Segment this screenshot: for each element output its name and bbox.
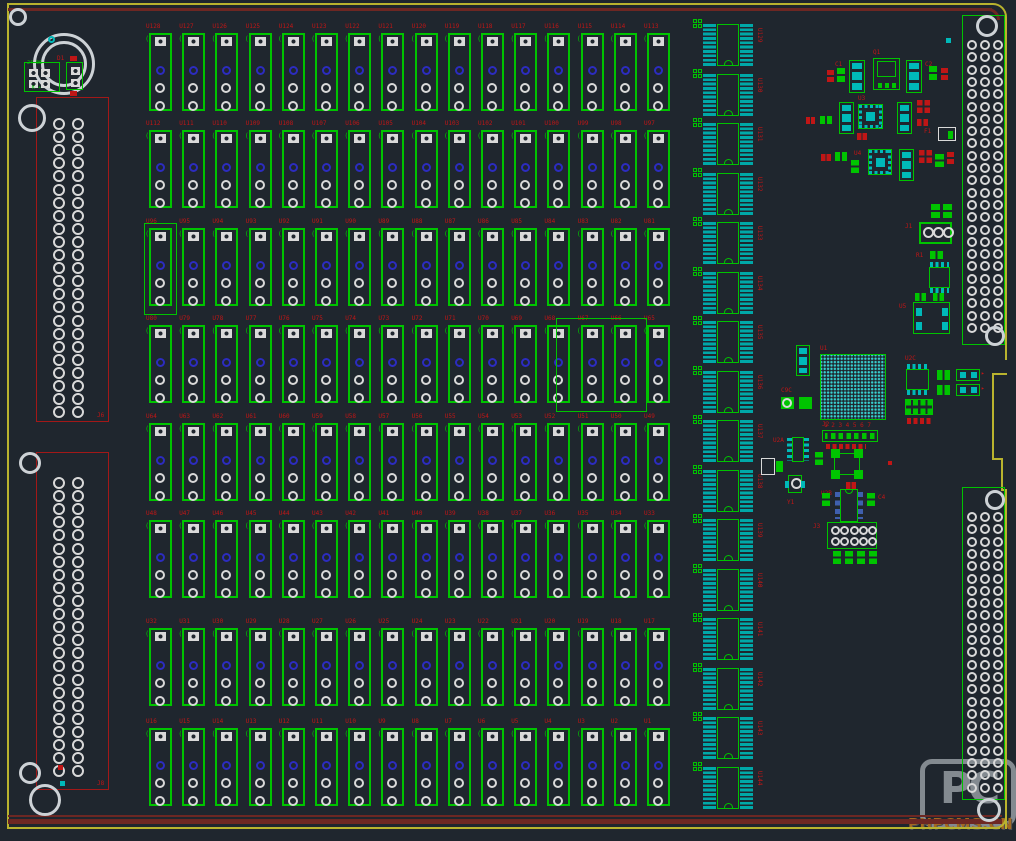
smd-r4row-footprint[interactable] xyxy=(907,418,931,424)
smd-g2h-footprint[interactable] xyxy=(915,293,926,301)
relay-footprint[interactable] xyxy=(647,520,670,598)
relay-footprint[interactable] xyxy=(249,130,272,208)
edge-connector-left-2[interactable] xyxy=(36,452,109,790)
cap-pad xyxy=(693,316,697,320)
relay-footprint[interactable] xyxy=(514,33,537,111)
relay-footprint[interactable] xyxy=(348,325,371,403)
dip-ic-footprint[interactable]: U134 xyxy=(700,272,756,314)
smd-wbox-footprint[interactable] xyxy=(938,127,956,141)
relay-footprint[interactable] xyxy=(282,520,305,598)
pad-round xyxy=(653,473,663,483)
smd-r2v-footprint[interactable] xyxy=(947,152,954,164)
relay-footprint[interactable] xyxy=(481,33,504,111)
mounting-hole[interactable] xyxy=(29,784,61,816)
relay-footprint[interactable] xyxy=(614,520,637,598)
relay-footprint[interactable] xyxy=(481,520,504,598)
relay-footprint[interactable] xyxy=(249,520,272,598)
relay-footprint[interactable] xyxy=(249,728,272,806)
relay-footprint[interactable] xyxy=(215,628,238,706)
dip-ic-footprint[interactable]: U142 xyxy=(700,668,756,710)
relay-footprint[interactable] xyxy=(249,325,272,403)
dip-label: U134 xyxy=(756,276,762,290)
smd-g2v-footprint[interactable] xyxy=(931,204,940,218)
bypass-cap-pads[interactable] xyxy=(693,415,702,425)
smd-cross4-footprint[interactable] xyxy=(831,449,863,479)
smd-dotr-footprint[interactable] xyxy=(888,461,892,465)
relay-footprint[interactable] xyxy=(215,130,238,208)
smd-icbig-footprint[interactable] xyxy=(913,302,950,334)
bypass-cap-pads[interactable] xyxy=(693,168,702,178)
smd-crystal-footprint[interactable] xyxy=(785,475,805,497)
through-hole-pad xyxy=(967,660,977,670)
ref-designator-label: U128 xyxy=(146,24,160,30)
relay-footprint[interactable] xyxy=(348,628,371,706)
through-hole-pad xyxy=(980,586,990,596)
pad-square xyxy=(487,232,498,241)
relay-footprint[interactable] xyxy=(614,423,637,501)
relay-footprint[interactable] xyxy=(514,228,537,306)
smd-dotc-footprint[interactable] xyxy=(60,781,65,786)
smd-g2h-footprint[interactable] xyxy=(937,370,950,380)
relay-footprint[interactable] xyxy=(514,628,537,706)
relay-footprint[interactable] xyxy=(415,325,438,403)
dip-ic-footprint[interactable]: U140 xyxy=(700,569,756,611)
relay-footprint[interactable] xyxy=(282,423,305,501)
smd-g2h-footprint[interactable] xyxy=(820,116,832,124)
relay-footprint[interactable] xyxy=(149,423,172,501)
pad-round xyxy=(653,393,663,403)
relay-footprint[interactable] xyxy=(315,33,338,111)
mounting-hole[interactable] xyxy=(985,326,1005,346)
smd-g2v-footprint[interactable] xyxy=(857,551,865,564)
smd-qfn-footprint[interactable] xyxy=(858,104,883,129)
pad-round xyxy=(155,375,165,385)
relay-footprint[interactable] xyxy=(381,325,404,403)
pad-square xyxy=(520,134,531,143)
smd-g2v-footprint[interactable] xyxy=(869,551,877,564)
through-hole-pad xyxy=(967,697,977,707)
relay-footprint[interactable] xyxy=(149,325,172,403)
pad-blue xyxy=(156,163,165,172)
pad-blue xyxy=(322,358,331,367)
bypass-cap-pads[interactable] xyxy=(693,762,702,772)
through-hole-pad xyxy=(72,647,84,659)
pad-square xyxy=(29,69,38,77)
bypass-cap-pads[interactable] xyxy=(693,366,702,376)
pad-square xyxy=(387,732,398,741)
pad-round xyxy=(553,491,563,501)
relay-footprint[interactable] xyxy=(415,33,438,111)
pad-round xyxy=(387,180,397,190)
relay-footprint[interactable] xyxy=(514,728,537,806)
dip-label: U136 xyxy=(756,375,762,389)
relay-footprint[interactable] xyxy=(182,628,205,706)
mounting-hole[interactable] xyxy=(19,452,41,474)
dip-ic-footprint[interactable]: U132 xyxy=(700,173,756,215)
dip-ic-footprint[interactable]: U141 xyxy=(700,618,756,660)
relay-footprint[interactable] xyxy=(348,728,371,806)
relay-footprint[interactable] xyxy=(647,33,670,111)
relay-footprint[interactable] xyxy=(547,520,570,598)
ref-designator-label: U74 xyxy=(345,316,356,322)
dip-label: U132 xyxy=(756,177,762,191)
cap-pad xyxy=(693,569,697,573)
cap-pad xyxy=(693,465,697,469)
relay-footprint[interactable] xyxy=(514,520,537,598)
relay-footprint[interactable] xyxy=(581,33,604,111)
relay-footprint[interactable] xyxy=(381,628,404,706)
pad-square xyxy=(587,134,598,143)
relay-footprint[interactable] xyxy=(215,728,238,806)
relay-footprint[interactable] xyxy=(547,228,570,306)
smd-wpad2-footprint[interactable] xyxy=(761,458,783,475)
smd-pad2big-footprint[interactable] xyxy=(781,396,812,411)
relay-footprint[interactable] xyxy=(249,33,272,111)
bypass-cap-pads[interactable] xyxy=(693,514,702,524)
smd-r4-footprint[interactable] xyxy=(917,100,930,113)
relay-footprint[interactable] xyxy=(547,628,570,706)
dip-ic-footprint[interactable]: U131 xyxy=(700,123,756,165)
relay-footprint[interactable] xyxy=(182,728,205,806)
relay-footprint[interactable] xyxy=(381,130,404,208)
through-hole-pad xyxy=(72,569,84,581)
dip-pad-strip-right xyxy=(740,668,753,710)
relay-footprint[interactable] xyxy=(282,325,305,403)
dip-pad-strip-left xyxy=(703,371,716,413)
pad-round xyxy=(155,101,165,111)
pad-round xyxy=(587,83,597,93)
pad-square xyxy=(155,732,166,741)
dip-ic-footprint[interactable]: U138 xyxy=(700,470,756,512)
pad-round xyxy=(587,588,597,598)
relay-footprint[interactable] xyxy=(315,130,338,208)
relay-footprint[interactable] xyxy=(581,423,604,501)
diode-footprint[interactable] xyxy=(66,62,83,90)
smd-r2v-footprint[interactable] xyxy=(941,68,948,80)
smd-r2v-footprint[interactable] xyxy=(827,70,834,82)
smd-g2h-footprint[interactable] xyxy=(930,251,943,259)
relay-footprint[interactable] xyxy=(614,33,637,111)
bypass-cap-pads[interactable] xyxy=(693,613,702,623)
smd-g2v-footprint[interactable] xyxy=(943,204,952,218)
relay-footprint[interactable] xyxy=(415,228,438,306)
through-hole-pad xyxy=(967,586,977,596)
smd-soic8v-footprint[interactable] xyxy=(787,436,809,463)
ref-designator-label: U36 xyxy=(544,511,555,517)
relay-footprint[interactable] xyxy=(415,520,438,598)
relay-footprint[interactable] xyxy=(514,130,537,208)
dip-ic-footprint[interactable]: U129 xyxy=(700,24,756,66)
relay-footprint[interactable] xyxy=(249,628,272,706)
relay-footprint[interactable] xyxy=(448,628,471,706)
smd-r2h-footprint[interactable] xyxy=(917,119,928,126)
smd-r2h-footprint[interactable] xyxy=(806,117,815,124)
pad-round xyxy=(354,570,364,580)
relay-footprint[interactable] xyxy=(581,628,604,706)
relay-footprint[interactable] xyxy=(182,33,205,111)
mounting-hole[interactable] xyxy=(976,15,998,37)
smd-r2h-footprint[interactable] xyxy=(821,154,831,161)
relay-footprint[interactable] xyxy=(282,728,305,806)
dip-pad-strip-right xyxy=(740,767,753,809)
relay-footprint[interactable] xyxy=(581,228,604,306)
relay-footprint[interactable] xyxy=(348,228,371,306)
smd-term3-footprint[interactable] xyxy=(919,222,952,244)
relay-footprint[interactable] xyxy=(315,628,338,706)
relay-footprint[interactable] xyxy=(149,728,172,806)
smd-v3-footprint[interactable] xyxy=(897,102,912,134)
pad-round xyxy=(288,570,298,580)
smd-arrow2-footprint[interactable] xyxy=(956,369,980,381)
bypass-cap-pads[interactable] xyxy=(693,118,702,128)
smd-v3-footprint[interactable] xyxy=(899,149,914,181)
bypass-cap-pads[interactable] xyxy=(693,69,702,79)
relay-footprint[interactable] xyxy=(348,423,371,501)
ref-designator-label: U39 xyxy=(445,511,456,517)
smd-g2v-footprint[interactable] xyxy=(851,160,859,173)
relay-footprint[interactable] xyxy=(614,628,637,706)
pad-round xyxy=(587,491,597,501)
ref-designator-label: J6 xyxy=(97,413,104,419)
smd-g2v-footprint[interactable] xyxy=(815,452,823,465)
relay-footprint[interactable] xyxy=(315,325,338,403)
ref-designator-label: U3 xyxy=(578,719,585,725)
relay-footprint[interactable] xyxy=(448,228,471,306)
through-hole-pad xyxy=(993,126,1003,136)
smd-dotc-footprint[interactable] xyxy=(946,38,951,43)
smd-r2h-footprint[interactable] xyxy=(846,482,856,489)
smd-hdr2x5-footprint[interactable] xyxy=(827,522,877,549)
dip-ic-footprint[interactable]: U143 xyxy=(700,717,756,759)
smd-v3-footprint[interactable] xyxy=(796,345,810,376)
relay-footprint[interactable] xyxy=(215,33,238,111)
smd-v3-footprint[interactable] xyxy=(839,102,854,134)
pad-round xyxy=(454,393,464,403)
bypass-cap-pads[interactable] xyxy=(693,217,702,227)
pad-round xyxy=(487,696,497,706)
dip-ic-footprint[interactable]: U139 xyxy=(700,519,756,561)
relay-footprint[interactable] xyxy=(182,520,205,598)
relay-footprint[interactable] xyxy=(448,520,471,598)
dip-ic-footprint[interactable]: U144 xyxy=(700,767,756,809)
smd-dotr-footprint[interactable] xyxy=(58,765,63,770)
relay-footprint[interactable] xyxy=(614,130,637,208)
pad-blue xyxy=(189,761,198,770)
smd-dip8-footprint[interactable] xyxy=(835,489,863,522)
pad-blue xyxy=(654,358,663,367)
smd-soic8h-footprint[interactable] xyxy=(928,262,951,293)
smd-g2v-footprint[interactable] xyxy=(935,154,944,167)
relay-footprint[interactable] xyxy=(481,130,504,208)
mounting-hole[interactable] xyxy=(18,104,46,132)
chip-pad xyxy=(960,387,966,393)
dip-ic-footprint[interactable]: U133 xyxy=(700,222,756,264)
relay-footprint[interactable] xyxy=(282,228,305,306)
relay-footprint[interactable] xyxy=(514,325,537,403)
relay-footprint[interactable] xyxy=(149,130,172,208)
pad-round xyxy=(520,570,530,580)
pad-blue xyxy=(355,358,364,367)
smd-soic8h-footprint[interactable] xyxy=(905,364,930,395)
pad-round xyxy=(553,678,563,688)
bypass-cap-pads[interactable] xyxy=(693,267,702,277)
bypass-cap-pads[interactable] xyxy=(693,465,702,475)
pad-round xyxy=(188,796,198,806)
smd-r2h-footprint[interactable] xyxy=(857,133,867,140)
relay-footprint[interactable] xyxy=(647,423,670,501)
smd-hdrrow-footprint[interactable] xyxy=(822,430,878,442)
dip-pin1-notch xyxy=(724,654,733,660)
ref-designator-label: U28 xyxy=(279,619,290,625)
relay-footprint[interactable] xyxy=(381,33,404,111)
relay-footprint[interactable] xyxy=(282,33,305,111)
relay-footprint[interactable] xyxy=(448,130,471,208)
relay-footprint[interactable] xyxy=(149,33,172,111)
edge-connector-right-1[interactable] xyxy=(962,15,1005,345)
dip8-pads-right xyxy=(858,492,863,519)
power-pads-block[interactable] xyxy=(24,62,60,92)
dip-ic-footprint[interactable]: U137 xyxy=(700,420,756,462)
relay-footprint[interactable] xyxy=(415,423,438,501)
mounting-hole[interactable] xyxy=(985,490,1005,510)
bypass-cap-pads[interactable] xyxy=(693,663,702,673)
relay-footprint[interactable] xyxy=(448,728,471,806)
smd-r4-footprint[interactable] xyxy=(919,150,932,163)
relay-footprint[interactable] xyxy=(481,423,504,501)
relay-footprint[interactable] xyxy=(149,520,172,598)
relay-footprint[interactable] xyxy=(581,520,604,598)
relay-footprint[interactable] xyxy=(215,423,238,501)
relay-footprint[interactable] xyxy=(315,520,338,598)
relay-footprint[interactable] xyxy=(448,423,471,501)
smd-v3-footprint[interactable] xyxy=(906,60,922,93)
through-hole-pad xyxy=(967,249,977,259)
relay-footprint[interactable] xyxy=(249,423,272,501)
smd-g2v-footprint[interactable] xyxy=(833,551,841,564)
mounting-hole[interactable] xyxy=(977,798,1001,822)
smd-g2h-footprint[interactable] xyxy=(937,385,950,395)
bypass-cap-pads[interactable] xyxy=(693,564,702,574)
relay-footprint[interactable] xyxy=(614,228,637,306)
relay-footprint[interactable] xyxy=(315,228,338,306)
mounting-hole[interactable] xyxy=(9,8,27,26)
ref-designator-label: U9 xyxy=(378,719,385,725)
relay-footprint[interactable] xyxy=(415,728,438,806)
relay-footprint[interactable] xyxy=(647,228,670,306)
relay-footprint[interactable] xyxy=(448,325,471,403)
relay-footprint[interactable] xyxy=(182,423,205,501)
smd-hdr4x2-footprint[interactable] xyxy=(905,399,933,415)
smd-g2v-footprint[interactable] xyxy=(867,493,875,506)
relay-footprint[interactable] xyxy=(481,728,504,806)
relay-footprint[interactable] xyxy=(282,130,305,208)
relay-footprint[interactable] xyxy=(415,130,438,208)
bypass-cap-pads[interactable] xyxy=(693,316,702,326)
smd-qfn-footprint[interactable] xyxy=(868,149,892,175)
through-hole-pad xyxy=(967,163,977,173)
relay-footprint[interactable] xyxy=(348,33,371,111)
relay-footprint[interactable] xyxy=(481,228,504,306)
smd-g2v-footprint[interactable] xyxy=(845,551,853,564)
relay-footprint[interactable] xyxy=(215,325,238,403)
through-hole-pad xyxy=(53,249,65,261)
relay-footprint[interactable] xyxy=(581,130,604,208)
dip-pin1-notch xyxy=(724,308,733,314)
edge-connector-right-2[interactable] xyxy=(962,487,1005,800)
relay-footprint[interactable] xyxy=(215,228,238,306)
bypass-cap-pads[interactable] xyxy=(693,712,702,722)
relay-footprint[interactable] xyxy=(547,728,570,806)
bypass-cap-pads[interactable] xyxy=(693,19,702,29)
ref-designator-label: U97 xyxy=(644,121,655,127)
smd-g2v-footprint[interactable] xyxy=(929,66,937,80)
smd-v3-footprint[interactable] xyxy=(849,60,865,93)
relay-footprint[interactable] xyxy=(547,33,570,111)
dip-ic-footprint[interactable]: U136 xyxy=(700,371,756,413)
relay-footprint[interactable] xyxy=(249,228,272,306)
through-hole-pad xyxy=(993,635,1003,645)
relay-footprint[interactable] xyxy=(315,423,338,501)
dip-label: U129 xyxy=(756,28,762,42)
cap-pad xyxy=(698,168,702,172)
dip-ic-footprint[interactable]: U135 xyxy=(700,321,756,363)
smd-g2v-footprint[interactable] xyxy=(837,68,845,82)
relay-footprint[interactable] xyxy=(448,33,471,111)
relay-footprint[interactable] xyxy=(547,423,570,501)
relay-footprint[interactable] xyxy=(182,228,205,306)
smd-g2h-footprint[interactable] xyxy=(835,152,847,161)
edge-connector-left-1[interactable] xyxy=(36,97,109,422)
relay-footprint[interactable] xyxy=(481,325,504,403)
relay-footprint[interactable] xyxy=(348,520,371,598)
relay-footprint[interactable] xyxy=(315,728,338,806)
relay-footprint[interactable] xyxy=(547,130,570,208)
pad-round xyxy=(387,678,397,688)
cap-pad xyxy=(693,366,697,370)
relay-footprint[interactable] xyxy=(647,325,670,403)
relay-footprint[interactable] xyxy=(215,520,238,598)
smd-dpak-footprint[interactable] xyxy=(873,58,900,90)
relay-footprint[interactable] xyxy=(149,628,172,706)
relay-footprint[interactable] xyxy=(581,728,604,806)
smd-bga-footprint[interactable] xyxy=(820,354,886,420)
relay-footprint[interactable] xyxy=(381,728,404,806)
relay-footprint[interactable] xyxy=(381,228,404,306)
relay-footprint[interactable] xyxy=(514,423,537,501)
relay-footprint[interactable] xyxy=(381,520,404,598)
relay-footprint[interactable] xyxy=(381,423,404,501)
relay-footprint[interactable] xyxy=(647,130,670,208)
relay-footprint[interactable] xyxy=(282,628,305,706)
relay-footprint[interactable] xyxy=(348,130,371,208)
relay-footprint[interactable] xyxy=(481,628,504,706)
smd-g2h-footprint[interactable] xyxy=(933,293,944,301)
relay-footprint[interactable] xyxy=(647,728,670,806)
relay-footprint[interactable] xyxy=(647,628,670,706)
smd-g2v-footprint[interactable] xyxy=(822,493,830,506)
mounting-hole[interactable] xyxy=(19,762,41,784)
smd-arrow2-footprint[interactable] xyxy=(956,384,980,396)
through-hole-pad xyxy=(980,561,990,571)
relay-footprint[interactable] xyxy=(182,130,205,208)
pad-square xyxy=(553,134,564,143)
pad-round xyxy=(653,491,663,501)
dip-ic-footprint[interactable]: U130 xyxy=(700,74,756,116)
relay-footprint[interactable] xyxy=(182,325,205,403)
relay-footprint[interactable] xyxy=(415,628,438,706)
relay-footprint[interactable] xyxy=(614,728,637,806)
through-hole-pad xyxy=(980,65,990,75)
